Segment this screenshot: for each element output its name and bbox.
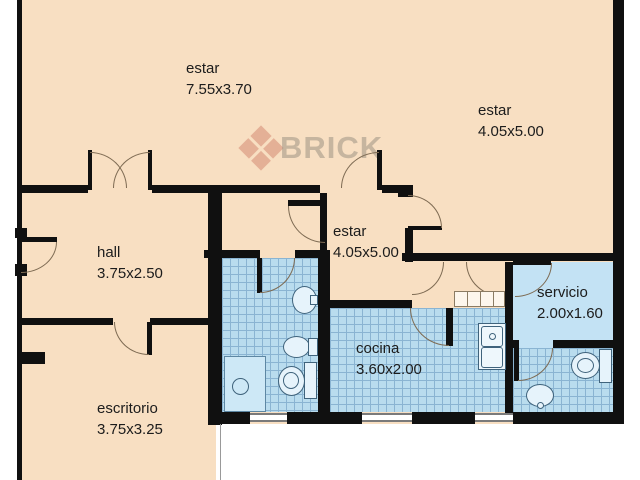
room-dims: 3.75x3.25 (97, 419, 163, 440)
wall (17, 185, 88, 193)
wall (150, 318, 208, 325)
kitchen-sink-counter (478, 323, 506, 370)
washbasin-tap (537, 402, 544, 409)
wall (152, 185, 320, 193)
room-name: escritorio (97, 398, 163, 419)
toilet-bowl (278, 366, 305, 396)
room-dims: 3.60x2.00 (356, 359, 422, 380)
wall (412, 412, 475, 424)
window (362, 413, 412, 422)
bidet-back (308, 338, 318, 356)
wall (513, 340, 519, 348)
toilet-tank (599, 349, 612, 383)
wall (287, 412, 362, 424)
room-label-estar-2: estar 4.05x5.00 (478, 100, 544, 142)
kitchen-sink-drain (489, 333, 496, 340)
wall (208, 185, 222, 425)
room-dims: 4.05x5.00 (478, 121, 544, 142)
bidet (283, 336, 310, 358)
room-label-cocina: cocina 3.60x2.00 (356, 338, 422, 380)
window (475, 413, 513, 422)
room-label-hall: hall 3.75x2.50 (97, 242, 163, 284)
wall (513, 412, 624, 424)
washbasin-tap (310, 295, 318, 305)
room-dims: 7.55x3.70 (186, 79, 252, 100)
wall (318, 250, 330, 424)
room-name: cocina (356, 338, 422, 359)
closet (454, 291, 505, 307)
wall (208, 412, 250, 424)
wall-right (613, 0, 624, 424)
wall (505, 262, 513, 415)
kitchen-sink-basin (481, 326, 503, 347)
window (250, 413, 287, 422)
room-label-estar-1: estar 7.55x3.70 (186, 58, 252, 100)
room-name: estar (186, 58, 252, 79)
toilet-bowl (571, 352, 600, 379)
wall (327, 300, 412, 308)
floor-plan: BRICK (0, 0, 640, 480)
wall (204, 250, 260, 258)
toilet-seat (283, 372, 299, 389)
room-name: estar (333, 221, 399, 242)
wall (21, 318, 113, 325)
kitchen-sink-basin (481, 347, 503, 368)
shower-drain (232, 378, 249, 395)
room-dims: 3.75x2.50 (97, 263, 163, 284)
wall-stub (17, 352, 45, 364)
room-dims: 4.05x5.00 (333, 242, 399, 263)
room-label-servicio: servicio 2.00x1.60 (537, 282, 603, 324)
wall (553, 340, 614, 348)
terrace-edge-line (220, 424, 221, 480)
room-dims: 2.00x1.60 (537, 303, 603, 324)
room-name: hall (97, 242, 163, 263)
toilet-tank (304, 362, 317, 399)
toilet-seat (577, 358, 594, 373)
room-label-estar-3: estar 4.05x5.00 (333, 221, 399, 263)
room-name: servicio (537, 282, 603, 303)
room-label-escritorio: escritorio 3.75x3.25 (97, 398, 163, 440)
wall (402, 253, 624, 261)
room-name: estar (478, 100, 544, 121)
